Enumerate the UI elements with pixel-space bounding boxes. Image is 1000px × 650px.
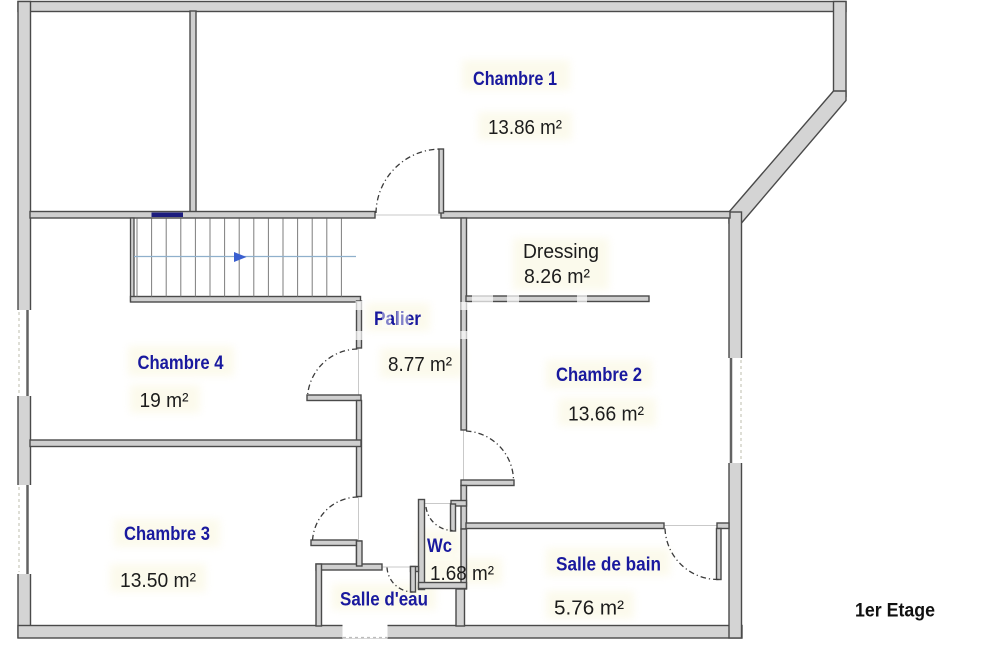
svg-text:Wc: Wc xyxy=(427,535,452,557)
svg-text:Chambre 4: Chambre 4 xyxy=(138,352,224,374)
svg-text:8.26 m²: 8.26 m² xyxy=(524,265,590,288)
svg-text:Salle d'eau: Salle d'eau xyxy=(340,589,428,611)
svg-text:5.76 m²: 5.76 m² xyxy=(554,597,624,620)
svg-text:Chambre 3: Chambre 3 xyxy=(124,523,210,545)
svg-text:Dressing: Dressing xyxy=(523,240,599,263)
svg-text:19 m²: 19 m² xyxy=(140,389,189,412)
svg-text:13.86 m²: 13.86 m² xyxy=(488,116,562,139)
svg-text:1er Etage: 1er Etage xyxy=(855,601,935,622)
svg-text:8.77 m²: 8.77 m² xyxy=(388,353,452,376)
svg-text:Chambre 2: Chambre 2 xyxy=(556,364,642,386)
svg-text:13.50 m²: 13.50 m² xyxy=(120,569,196,592)
svg-text:13.66 m²: 13.66 m² xyxy=(568,403,644,426)
svg-text:1.68 m²: 1.68 m² xyxy=(430,562,494,585)
svg-text:Chambre 1: Chambre 1 xyxy=(473,68,557,90)
svg-text:Salle de bain: Salle de bain xyxy=(556,554,661,576)
